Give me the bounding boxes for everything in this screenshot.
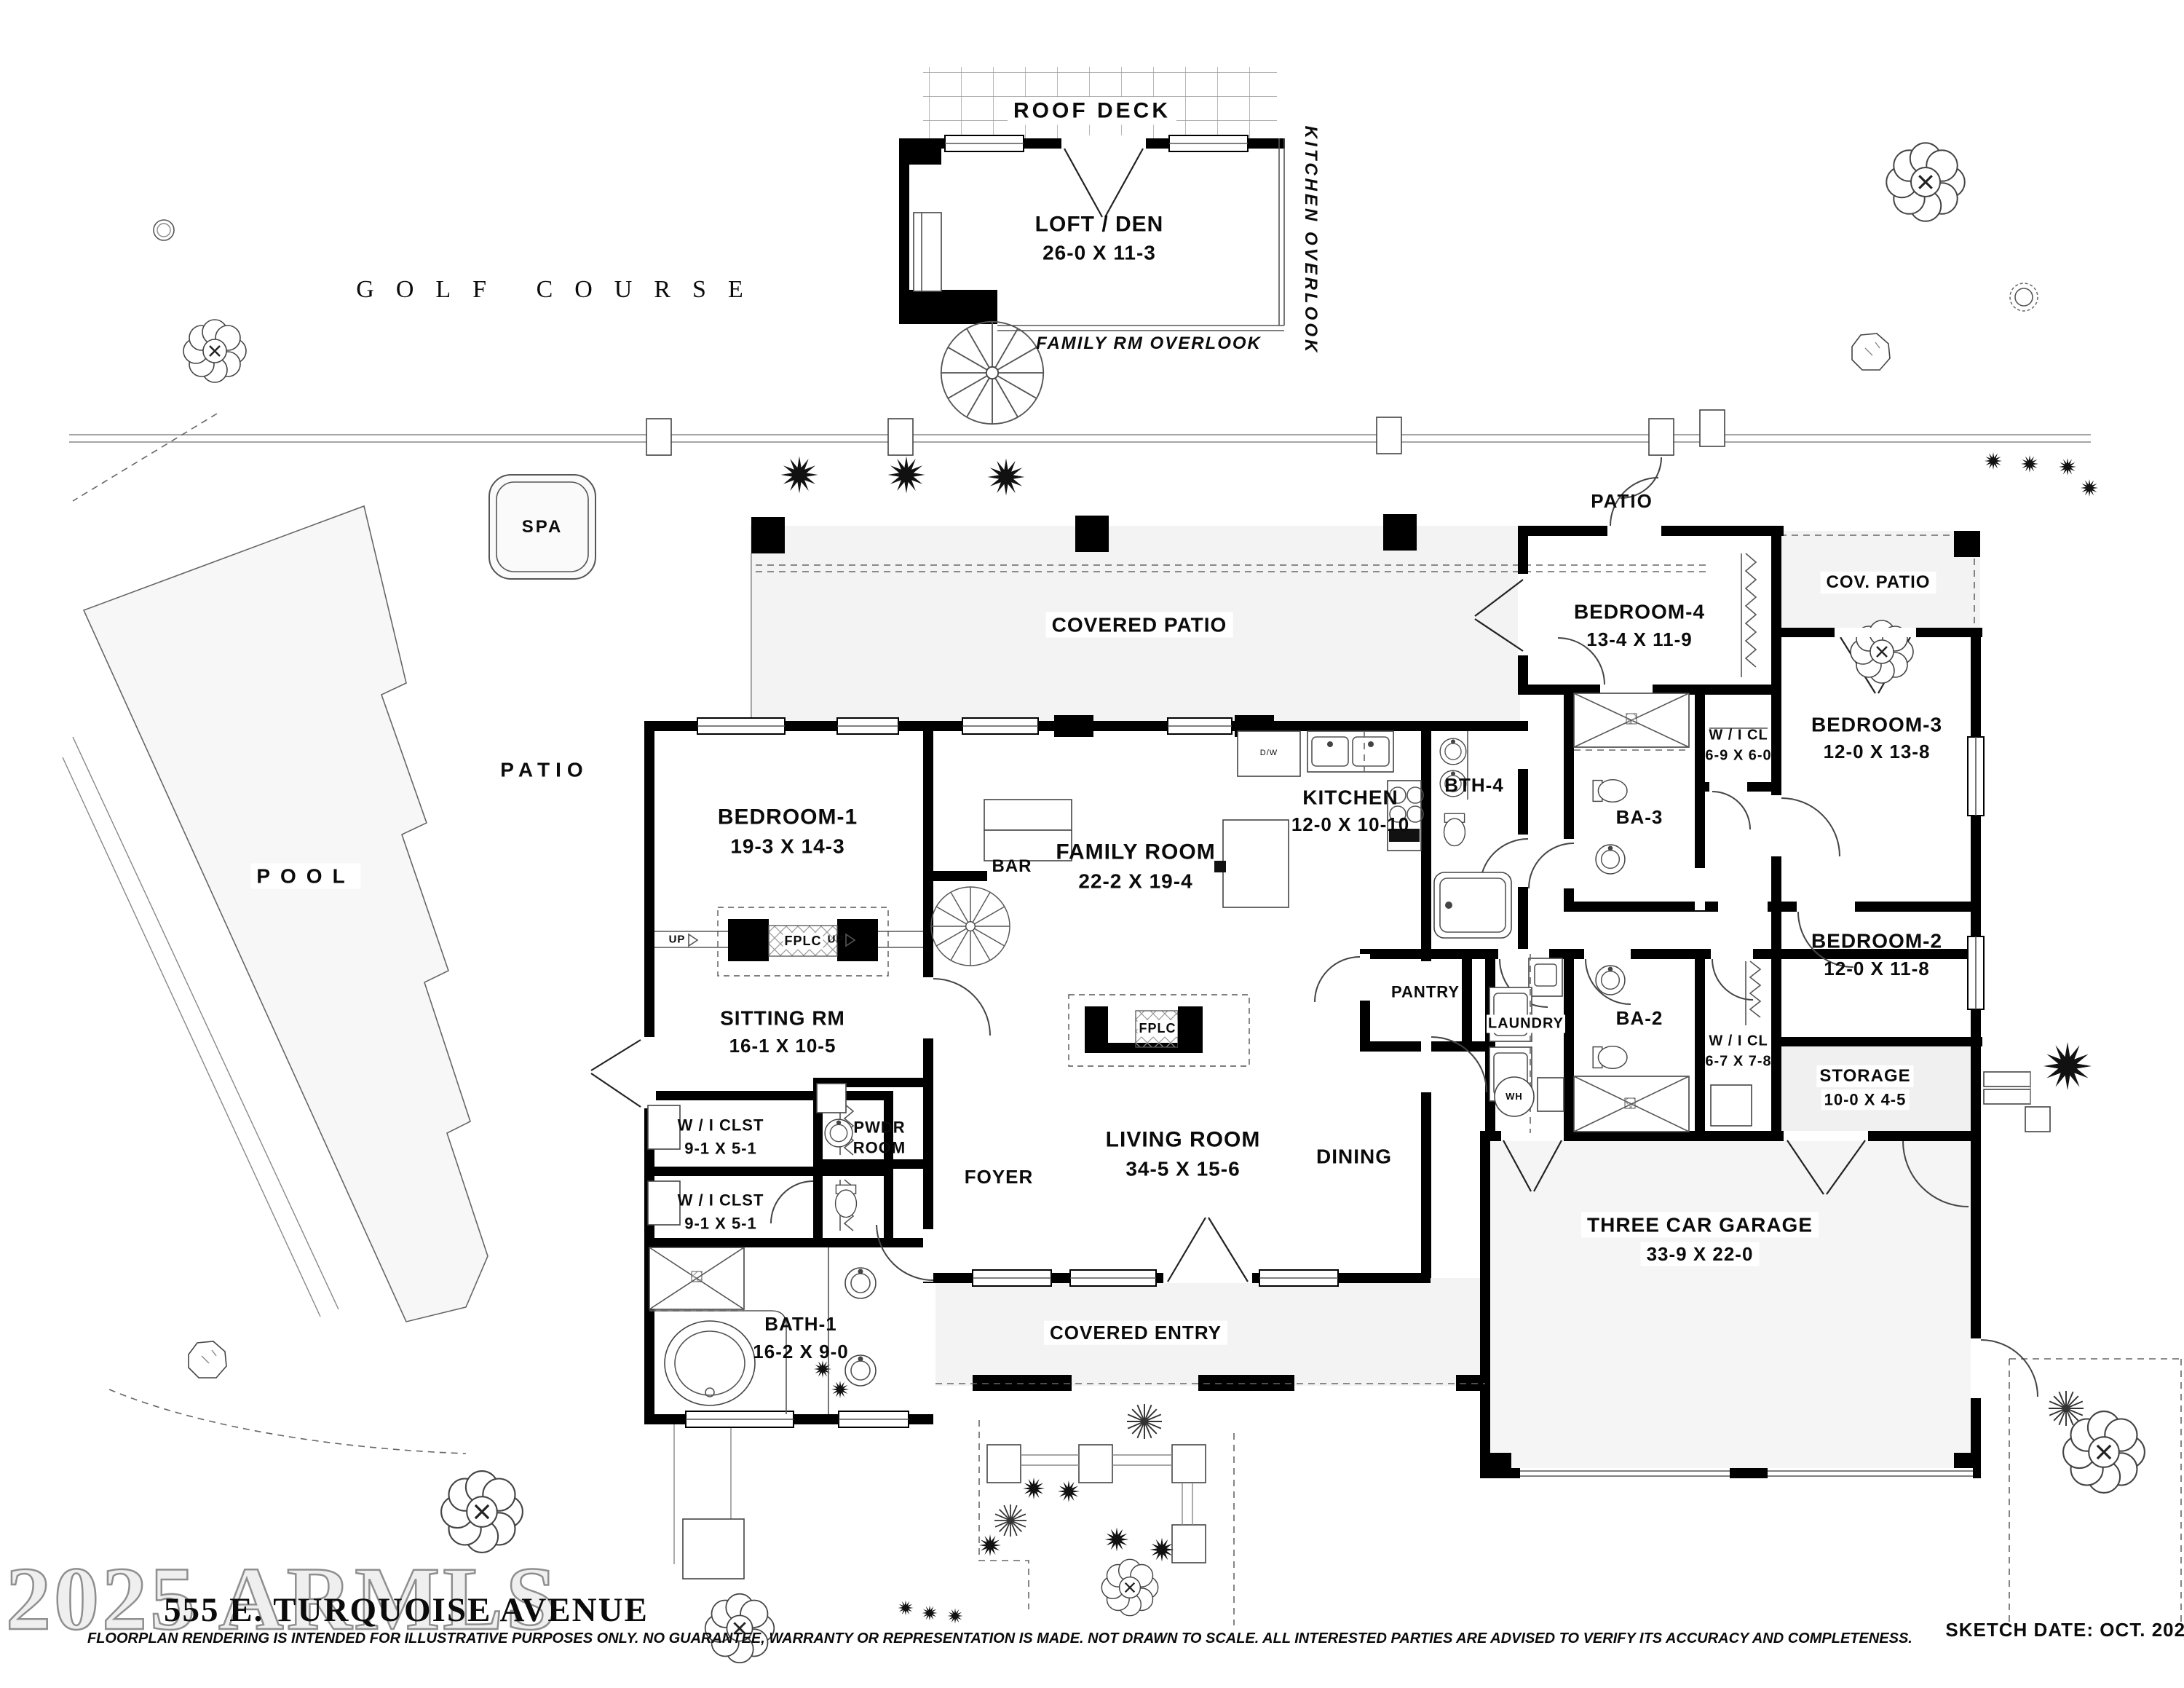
wiclst1-name: W / I CLST xyxy=(678,1115,764,1135)
pool-label: POOL xyxy=(250,864,360,889)
patio-west-label: PATIO xyxy=(500,757,588,783)
up-left-label: UP xyxy=(669,934,686,947)
pantry-label: PANTRY xyxy=(1391,982,1460,1002)
pwdr-line2: ROOM xyxy=(853,1137,906,1158)
bedroom2-dims: 12-0 X 11-8 xyxy=(1824,957,1929,981)
wicl3-name: W / I CL xyxy=(1709,727,1768,745)
laundry-label: LAUNDRY xyxy=(1487,1015,1565,1033)
kitchen-name: KITCHEN xyxy=(1302,785,1398,811)
garage-name: THREE CAR GARAGE xyxy=(1581,1212,1819,1238)
ba3-label: BA-3 xyxy=(1616,805,1663,829)
family-dims: 22-2 X 19-4 xyxy=(1078,869,1192,894)
wh-label: WH xyxy=(1506,1091,1523,1103)
living-dims: 34-5 X 15-6 xyxy=(1125,1156,1240,1182)
patio-north-label: PATIO xyxy=(1591,489,1653,513)
bedroom3-dims: 12-0 X 13-8 xyxy=(1824,740,1931,764)
bedroom4-dims: 13-4 X 11-9 xyxy=(1586,628,1692,652)
spa-label: SPA xyxy=(522,516,563,538)
golf-course-label: GOLF COURSE xyxy=(356,275,764,306)
dining-label: DINING xyxy=(1316,1144,1392,1170)
bedroom3-name: BEDROOM-3 xyxy=(1811,712,1942,738)
covered-entry-label: COVERED ENTRY xyxy=(1044,1321,1227,1345)
disclaimer-text: FLOORPLAN RENDERING IS INTENDED FOR ILLU… xyxy=(87,1630,1912,1648)
covered-patio-label: COVERED PATIO xyxy=(1046,612,1233,638)
family-overlook-label: FAMILY RM OVERLOOK xyxy=(1036,333,1262,355)
sitting-name: SITTING RM xyxy=(720,1006,845,1031)
cov-patio-2-label: COV. PATIO xyxy=(1821,572,1936,593)
pool-shape xyxy=(63,506,488,1454)
bedroom1-dims: 19-3 X 14-3 xyxy=(730,834,844,859)
bath1-name: BATH-1 xyxy=(764,1312,836,1336)
wicl2-name: W / I CL xyxy=(1709,1033,1768,1051)
ba2-label: BA-2 xyxy=(1616,1006,1663,1030)
bedroom2-name: BEDROOM-2 xyxy=(1811,928,1942,954)
wiclst1-dims: 9-1 X 5-1 xyxy=(684,1138,757,1159)
bath1-dims: 16-2 X 9-0 xyxy=(753,1340,848,1364)
living-name: LIVING ROOM xyxy=(1106,1126,1261,1153)
bedroom4-name: BEDROOM-4 xyxy=(1574,599,1705,625)
bar-label: BAR xyxy=(992,856,1032,877)
wicl2-dims: 6-7 X 7-8 xyxy=(1705,1053,1771,1071)
fplc2-label: FPLC xyxy=(1138,1020,1178,1037)
address-title: 555 E. TURQUOISE AVENUE xyxy=(164,1589,649,1632)
storage-name: STORAGE xyxy=(1816,1065,1913,1087)
dw-label: D/W xyxy=(1260,749,1278,759)
sketch-date: SKETCH DATE: OCT. 2025 xyxy=(1945,1618,2184,1642)
kitchen-dims: 12-0 X 10-10 xyxy=(1291,813,1409,837)
roof-deck-label: ROOF DECK xyxy=(1008,97,1176,125)
kitchen-overlook-label: KITCHEN OVERLOOK xyxy=(1299,126,1321,355)
storage-dims: 10-0 X 4-5 xyxy=(1821,1089,1910,1110)
sitting-dims: 16-1 X 10-5 xyxy=(729,1034,836,1058)
fplc1-label: FPLC xyxy=(783,933,823,950)
wicl3-dims: 6-9 X 6-0 xyxy=(1705,747,1771,765)
wiclst2-dims: 9-1 X 5-1 xyxy=(684,1213,757,1234)
loft-name: LOFT / DEN xyxy=(1035,210,1164,238)
bth4-label: BTH-4 xyxy=(1444,773,1504,797)
foyer-label: FOYER xyxy=(965,1165,1034,1189)
wiclst2-name: W / I CLST xyxy=(678,1190,764,1210)
pwdr-line1: PWDR xyxy=(853,1117,905,1137)
family-name: FAMILY ROOM xyxy=(1056,838,1215,866)
floorplan-canvas: ROOF DECK LOFT / DEN 26-0 X 11-3 KITCHEN… xyxy=(0,0,2184,1688)
loft-dims: 26-0 X 11-3 xyxy=(1042,240,1156,266)
up-right-label: UP xyxy=(828,934,844,947)
garage-dims: 33-9 X 22-0 xyxy=(1641,1242,1760,1266)
bedroom1-name: BEDROOM-1 xyxy=(718,803,858,831)
